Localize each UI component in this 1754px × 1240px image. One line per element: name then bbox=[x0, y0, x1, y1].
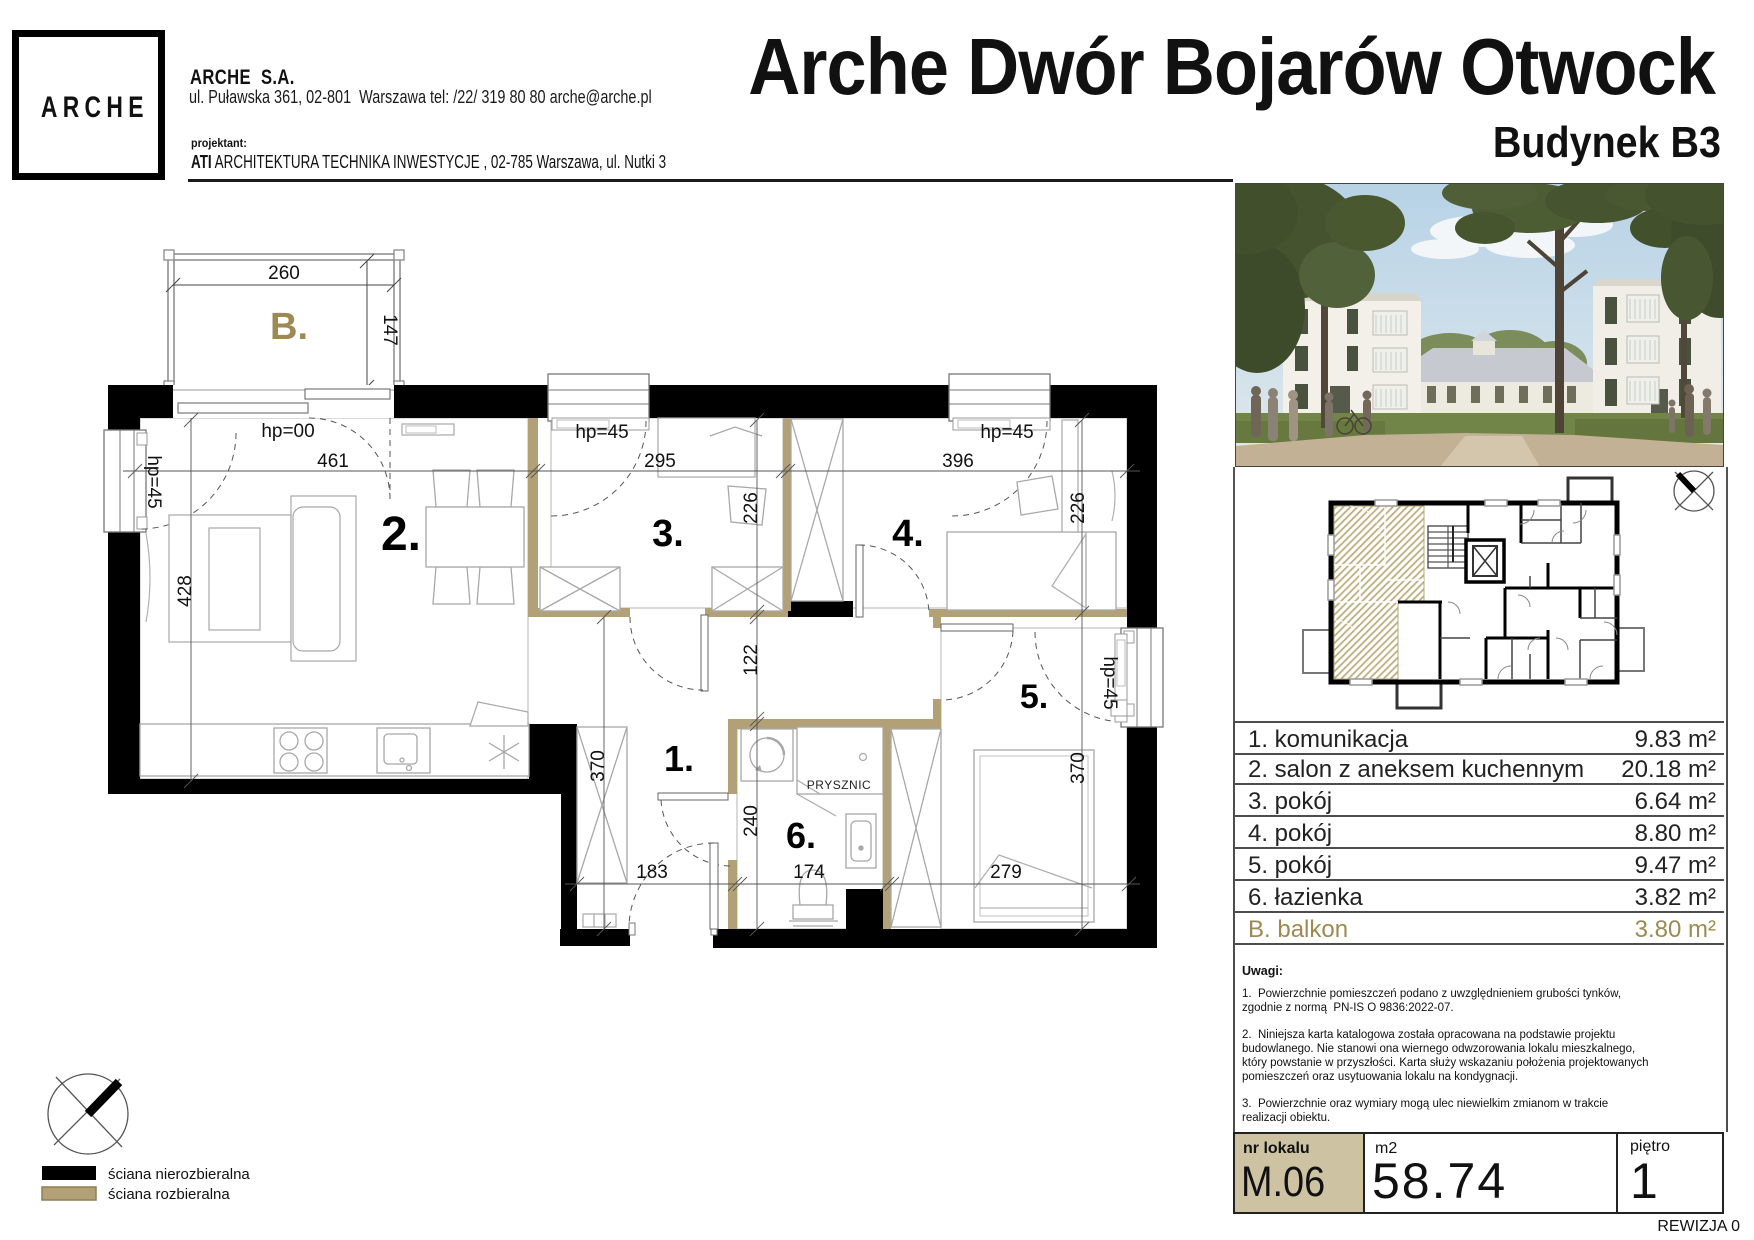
svg-text:396: 396 bbox=[942, 451, 974, 472]
svg-text:ściana nierozbieralna: ściana nierozbieralna bbox=[108, 1166, 250, 1183]
svg-text:183: 183 bbox=[636, 862, 668, 883]
svg-text:295: 295 bbox=[644, 451, 676, 472]
svg-text:226: 226 bbox=[741, 492, 762, 524]
svg-text:370: 370 bbox=[1068, 752, 1089, 784]
svg-text:260: 260 bbox=[268, 263, 300, 284]
svg-text:hp=00: hp=00 bbox=[261, 421, 314, 442]
svg-text:370: 370 bbox=[588, 750, 609, 782]
svg-text:hp=45: hp=45 bbox=[575, 422, 628, 443]
svg-text:147: 147 bbox=[379, 314, 400, 346]
svg-text:3.: 3. bbox=[652, 513, 684, 555]
svg-text:1.: 1. bbox=[664, 738, 694, 779]
svg-text:ściana rozbieralna: ściana rozbieralna bbox=[108, 1186, 230, 1203]
svg-text:279: 279 bbox=[990, 862, 1022, 883]
svg-text:hp=45: hp=45 bbox=[980, 422, 1033, 443]
svg-text:6.: 6. bbox=[786, 815, 816, 856]
svg-text:2.: 2. bbox=[381, 508, 421, 561]
svg-text:4.: 4. bbox=[892, 513, 924, 555]
svg-text:B.: B. bbox=[270, 306, 308, 348]
svg-text:428: 428 bbox=[175, 575, 196, 607]
svg-text:240: 240 bbox=[741, 805, 762, 837]
svg-text:5.: 5. bbox=[1020, 678, 1048, 716]
svg-text:174: 174 bbox=[793, 862, 825, 883]
svg-text:122: 122 bbox=[741, 644, 762, 676]
svg-text:461: 461 bbox=[317, 451, 349, 472]
svg-text:hp=45: hp=45 bbox=[1099, 656, 1120, 709]
svg-text:hp=45: hp=45 bbox=[143, 455, 164, 508]
svg-text:PRYSZNIC: PRYSZNIC bbox=[807, 778, 871, 792]
svg-text:226: 226 bbox=[1068, 492, 1089, 524]
